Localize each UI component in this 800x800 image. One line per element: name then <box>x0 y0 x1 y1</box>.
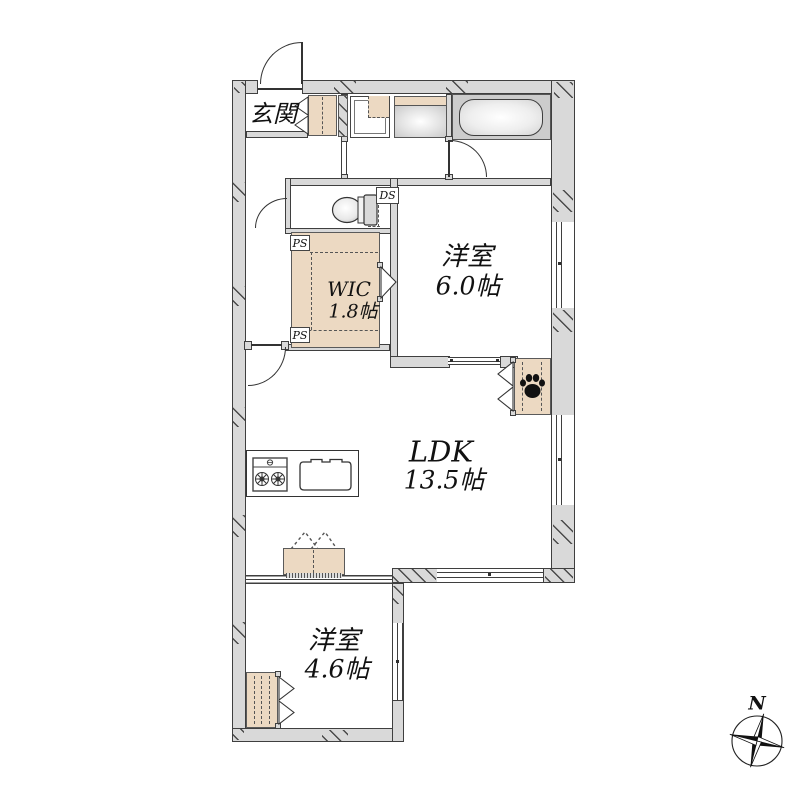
wall-hatch <box>233 182 245 202</box>
ds-label: DS <box>379 189 395 202</box>
washbasin-icon <box>394 105 447 138</box>
shoe-cabinet-dashed-line <box>322 97 323 134</box>
wall-hatch <box>233 622 245 644</box>
bedroom1-name-label: 洋室 <box>441 244 493 270</box>
door-swing-arc <box>450 140 487 177</box>
window-tick <box>396 660 399 663</box>
wall-hatch <box>554 82 573 98</box>
counter-dashed-area <box>368 96 389 118</box>
wall-hatch <box>233 407 245 427</box>
door-swing-arc <box>260 42 302 84</box>
window-tick <box>488 573 491 576</box>
bedroom2-size-label: 4.6帖 <box>305 657 370 682</box>
wall-segment <box>392 700 404 742</box>
wall-segment <box>232 728 404 742</box>
wic-name-label: WIC <box>327 279 371 299</box>
wall-hatch <box>393 586 403 604</box>
wic-dashed-line <box>311 252 312 330</box>
counter-dashed-triangles <box>284 528 344 550</box>
bedroom1-size-label: 6.0帖 <box>436 274 501 299</box>
window <box>551 415 575 505</box>
window <box>551 222 575 308</box>
folding-door-icon <box>277 675 297 727</box>
wall-hatch <box>234 82 245 93</box>
door-leaf <box>251 344 282 346</box>
wall-hatch <box>553 520 573 544</box>
ps-label: PS <box>293 329 308 342</box>
ldk-size-label: 13.5帖 <box>404 468 485 493</box>
toilet-icon <box>331 193 379 227</box>
entrance-label: 玄関 <box>249 102 297 126</box>
partition-strip <box>338 95 348 137</box>
bathtub-icon <box>459 99 543 136</box>
closet <box>246 672 278 728</box>
wall-hatch <box>233 729 244 740</box>
ps-tag-upper: PS <box>290 235 310 251</box>
wall-segment <box>390 356 450 368</box>
wall-hatch <box>446 81 468 93</box>
ps-tag-lower: PS <box>290 327 310 343</box>
folding-door-icon <box>495 360 515 413</box>
folding-door-icon <box>379 265 398 300</box>
wall-segment <box>285 178 551 186</box>
wall-hatch <box>553 310 573 332</box>
wall-hatch <box>553 190 573 212</box>
ldk-name-label: LDK <box>409 438 473 467</box>
stove-icon <box>252 457 288 492</box>
wic-dashed-line <box>310 252 378 253</box>
window-tick <box>558 458 561 461</box>
compass-icon <box>728 712 786 770</box>
bedroom2-name-label: 洋室 <box>308 628 360 654</box>
pass-through-counter <box>283 548 345 575</box>
door-swing-arc <box>248 347 286 386</box>
counter-track <box>286 573 342 578</box>
compass-north-label: N <box>748 695 765 714</box>
ds-tag: DS <box>376 187 399 204</box>
wall-hatch <box>233 515 245 537</box>
closet-dashed-line <box>269 676 270 724</box>
entrance-threshold <box>258 88 302 90</box>
floor-plan: DS PS PS <box>0 0 800 800</box>
closet-dashed-line <box>261 676 262 724</box>
paw-icon <box>519 372 546 400</box>
ds-dashed-line <box>368 226 380 227</box>
window-tick <box>558 262 561 265</box>
ds-dashed-line <box>378 205 379 227</box>
wall-hatch <box>334 81 356 93</box>
window-tick <box>450 359 453 362</box>
wall-hatch <box>393 569 436 582</box>
counter-dashed-line <box>313 550 314 573</box>
ps-label: PS <box>293 237 308 250</box>
wall-hatch <box>233 286 245 306</box>
wic-size-label: 1.8帖 <box>328 303 377 322</box>
sink-icon <box>298 458 353 493</box>
sliding-door <box>341 142 348 176</box>
wall-hatch <box>545 569 573 582</box>
sliding-door <box>448 357 502 365</box>
door-swing-arc <box>255 198 287 228</box>
closet-dashed-line <box>254 676 255 724</box>
wall-hatch <box>322 730 348 741</box>
